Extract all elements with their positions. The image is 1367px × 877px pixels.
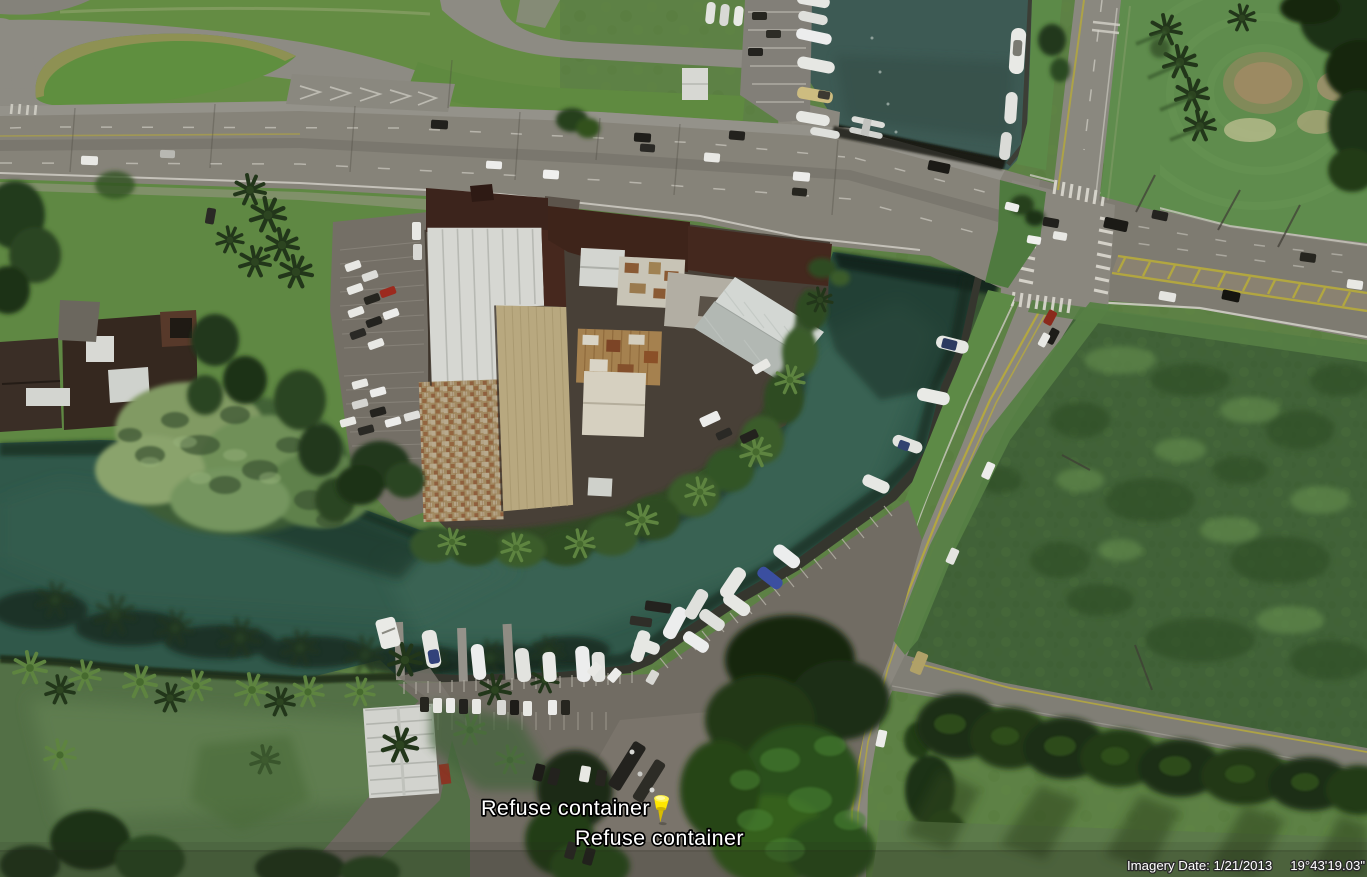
- svg-text:Refuse container: Refuse container: [575, 826, 744, 850]
- svg-text:19°43'19.03": 19°43'19.03": [1290, 858, 1365, 873]
- svg-text:Refuse container: Refuse container: [481, 796, 650, 820]
- svg-text:Imagery Date: 1/21/2013: Imagery Date: 1/21/2013: [1127, 858, 1272, 873]
